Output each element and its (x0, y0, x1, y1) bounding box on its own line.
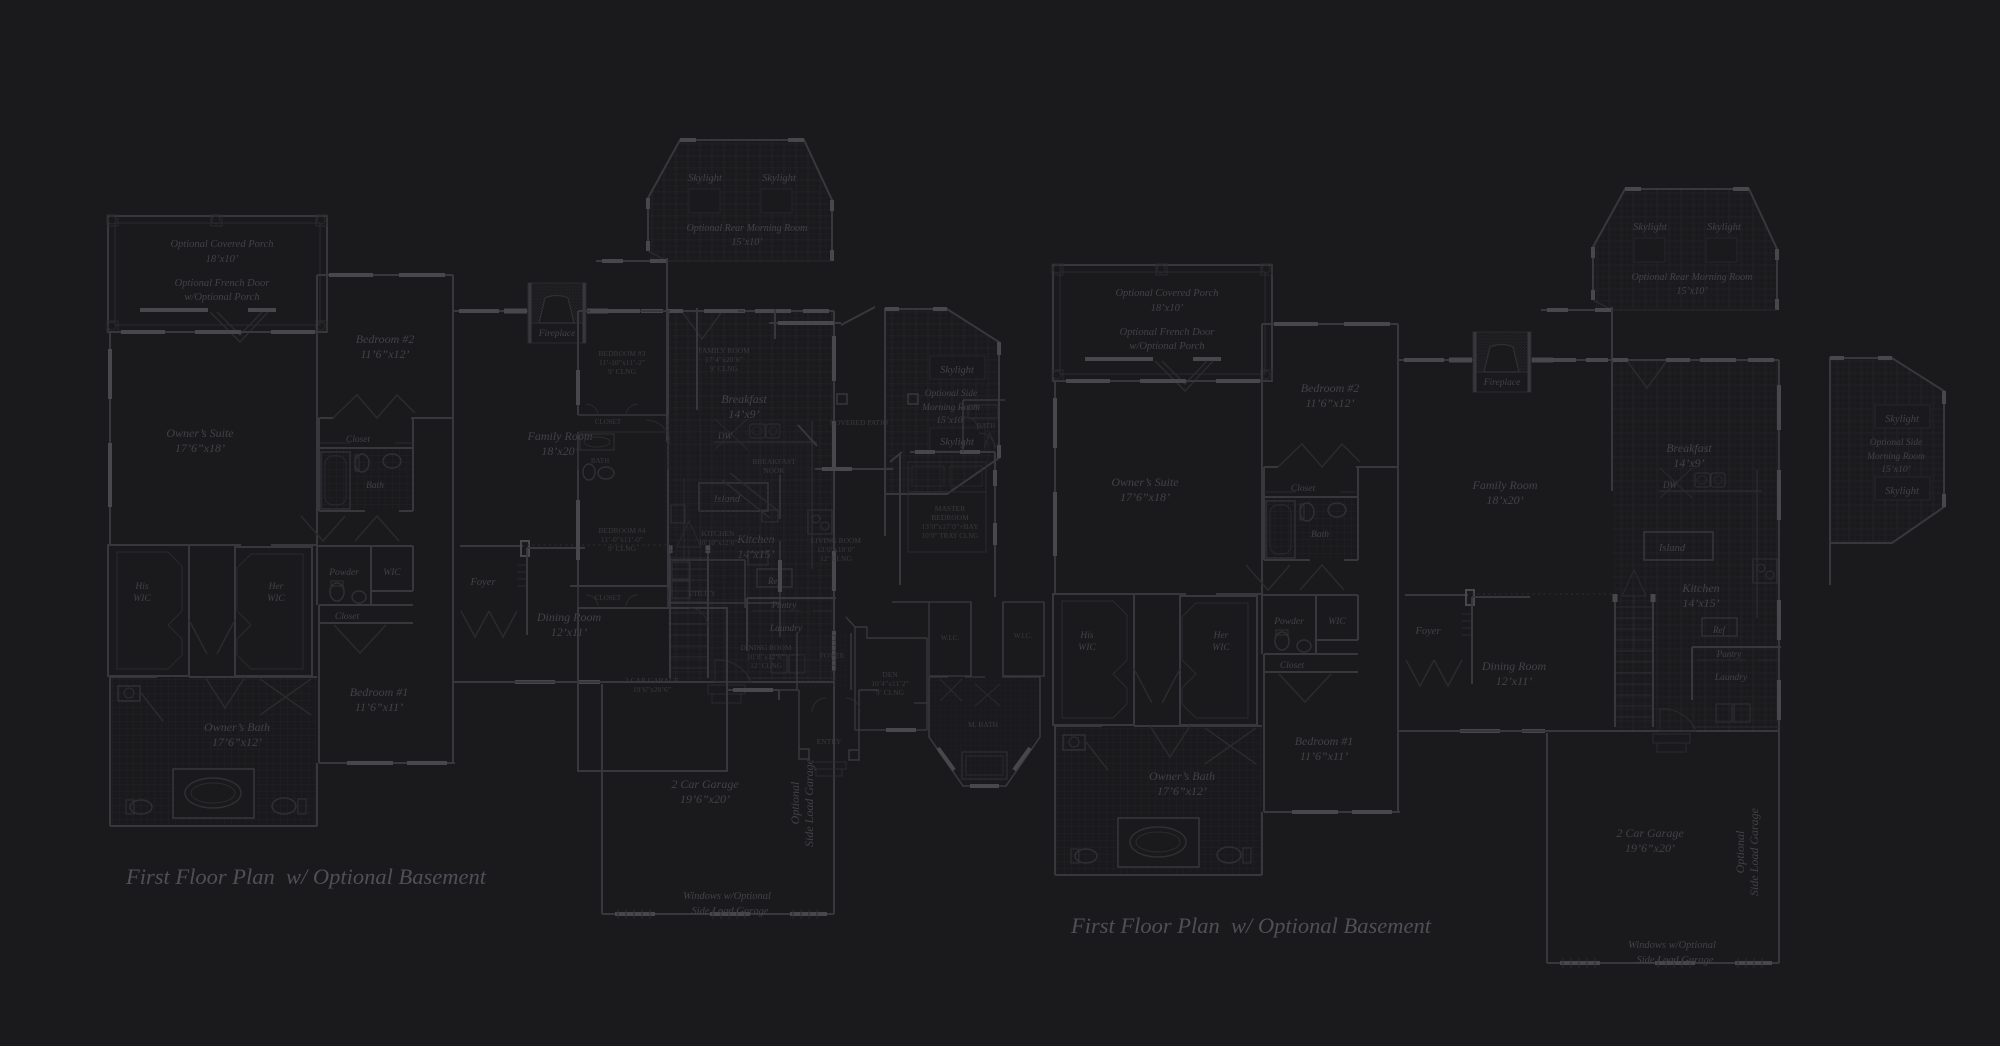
svg-text:9’ CLNG: 9’ CLNG (876, 688, 905, 697)
svg-text:10’0” TRAY CLNG: 10’0” TRAY CLNG (922, 532, 979, 540)
svg-text:BATH: BATH (977, 422, 995, 430)
svg-text:13’0”x17’0”+BAY: 13’0”x17’0”+BAY (921, 522, 979, 531)
svg-text:FAMILY ROOM: FAMILY ROOM (698, 346, 750, 355)
svg-text:19’6”x20’6”: 19’6”x20’6” (633, 685, 671, 694)
svg-text:M. BATH: M. BATH (968, 720, 999, 729)
svg-text:BREAKFAST: BREAKFAST (752, 457, 796, 466)
svg-text:MASTER: MASTER (935, 504, 965, 513)
svg-text:CLOSET: CLOSET (595, 418, 622, 426)
svg-text:UTILITY: UTILITY (688, 590, 716, 598)
svg-text:12’ CLNG: 12’ CLNG (820, 554, 852, 563)
svg-text:BEDROOM #4: BEDROOM #4 (599, 526, 646, 535)
svg-text:10’8”x12’6”: 10’8”x12’6” (747, 652, 785, 661)
svg-text:2 CAR GARAGE: 2 CAR GARAGE (625, 676, 680, 685)
svg-text:BEDROOM #3: BEDROOM #3 (599, 349, 646, 358)
svg-text:9’ CLNG: 9’ CLNG (710, 364, 739, 373)
svg-text:9’ CLNG: 9’ CLNG (608, 544, 637, 553)
svg-text:W.I.C.: W.I.C. (941, 634, 959, 642)
svg-text:ENTRY: ENTRY (817, 737, 842, 746)
svg-text:11’-10”x11’-2”: 11’-10”x11’-2” (599, 358, 645, 367)
svg-text:12’ CLNG: 12’ CLNG (750, 661, 782, 670)
svg-text:DEN: DEN (882, 670, 898, 679)
svg-text:W.I.C.: W.I.C. (1014, 632, 1032, 640)
svg-text:13’0”x18’0”: 13’0”x18’0” (817, 545, 855, 554)
svg-text:DINING ROOM: DINING ROOM (740, 643, 791, 652)
svg-text:BATH: BATH (591, 457, 609, 465)
svg-text:11’-0”x11’-0”: 11’-0”x11’-0” (601, 535, 643, 544)
svg-text:KITCHEN: KITCHEN (702, 529, 735, 538)
svg-text:COVERED PATIO: COVERED PATIO (830, 418, 888, 427)
svg-text:10’10”x12’6”: 10’10”x12’6” (699, 539, 738, 547)
svg-text:LIVING ROOM: LIVING ROOM (811, 536, 862, 545)
svg-text:9’ CLNG: 9’ CLNG (608, 367, 637, 376)
svg-text:CLOSET: CLOSET (595, 594, 622, 602)
svg-text:10’4”x11’2”: 10’4”x11’2” (871, 679, 909, 688)
svg-text:NOOK: NOOK (763, 466, 785, 475)
svg-text:17’4”x20’6”: 17’4”x20’6” (705, 355, 743, 364)
svg-text:BEDROOM: BEDROOM (931, 513, 969, 522)
